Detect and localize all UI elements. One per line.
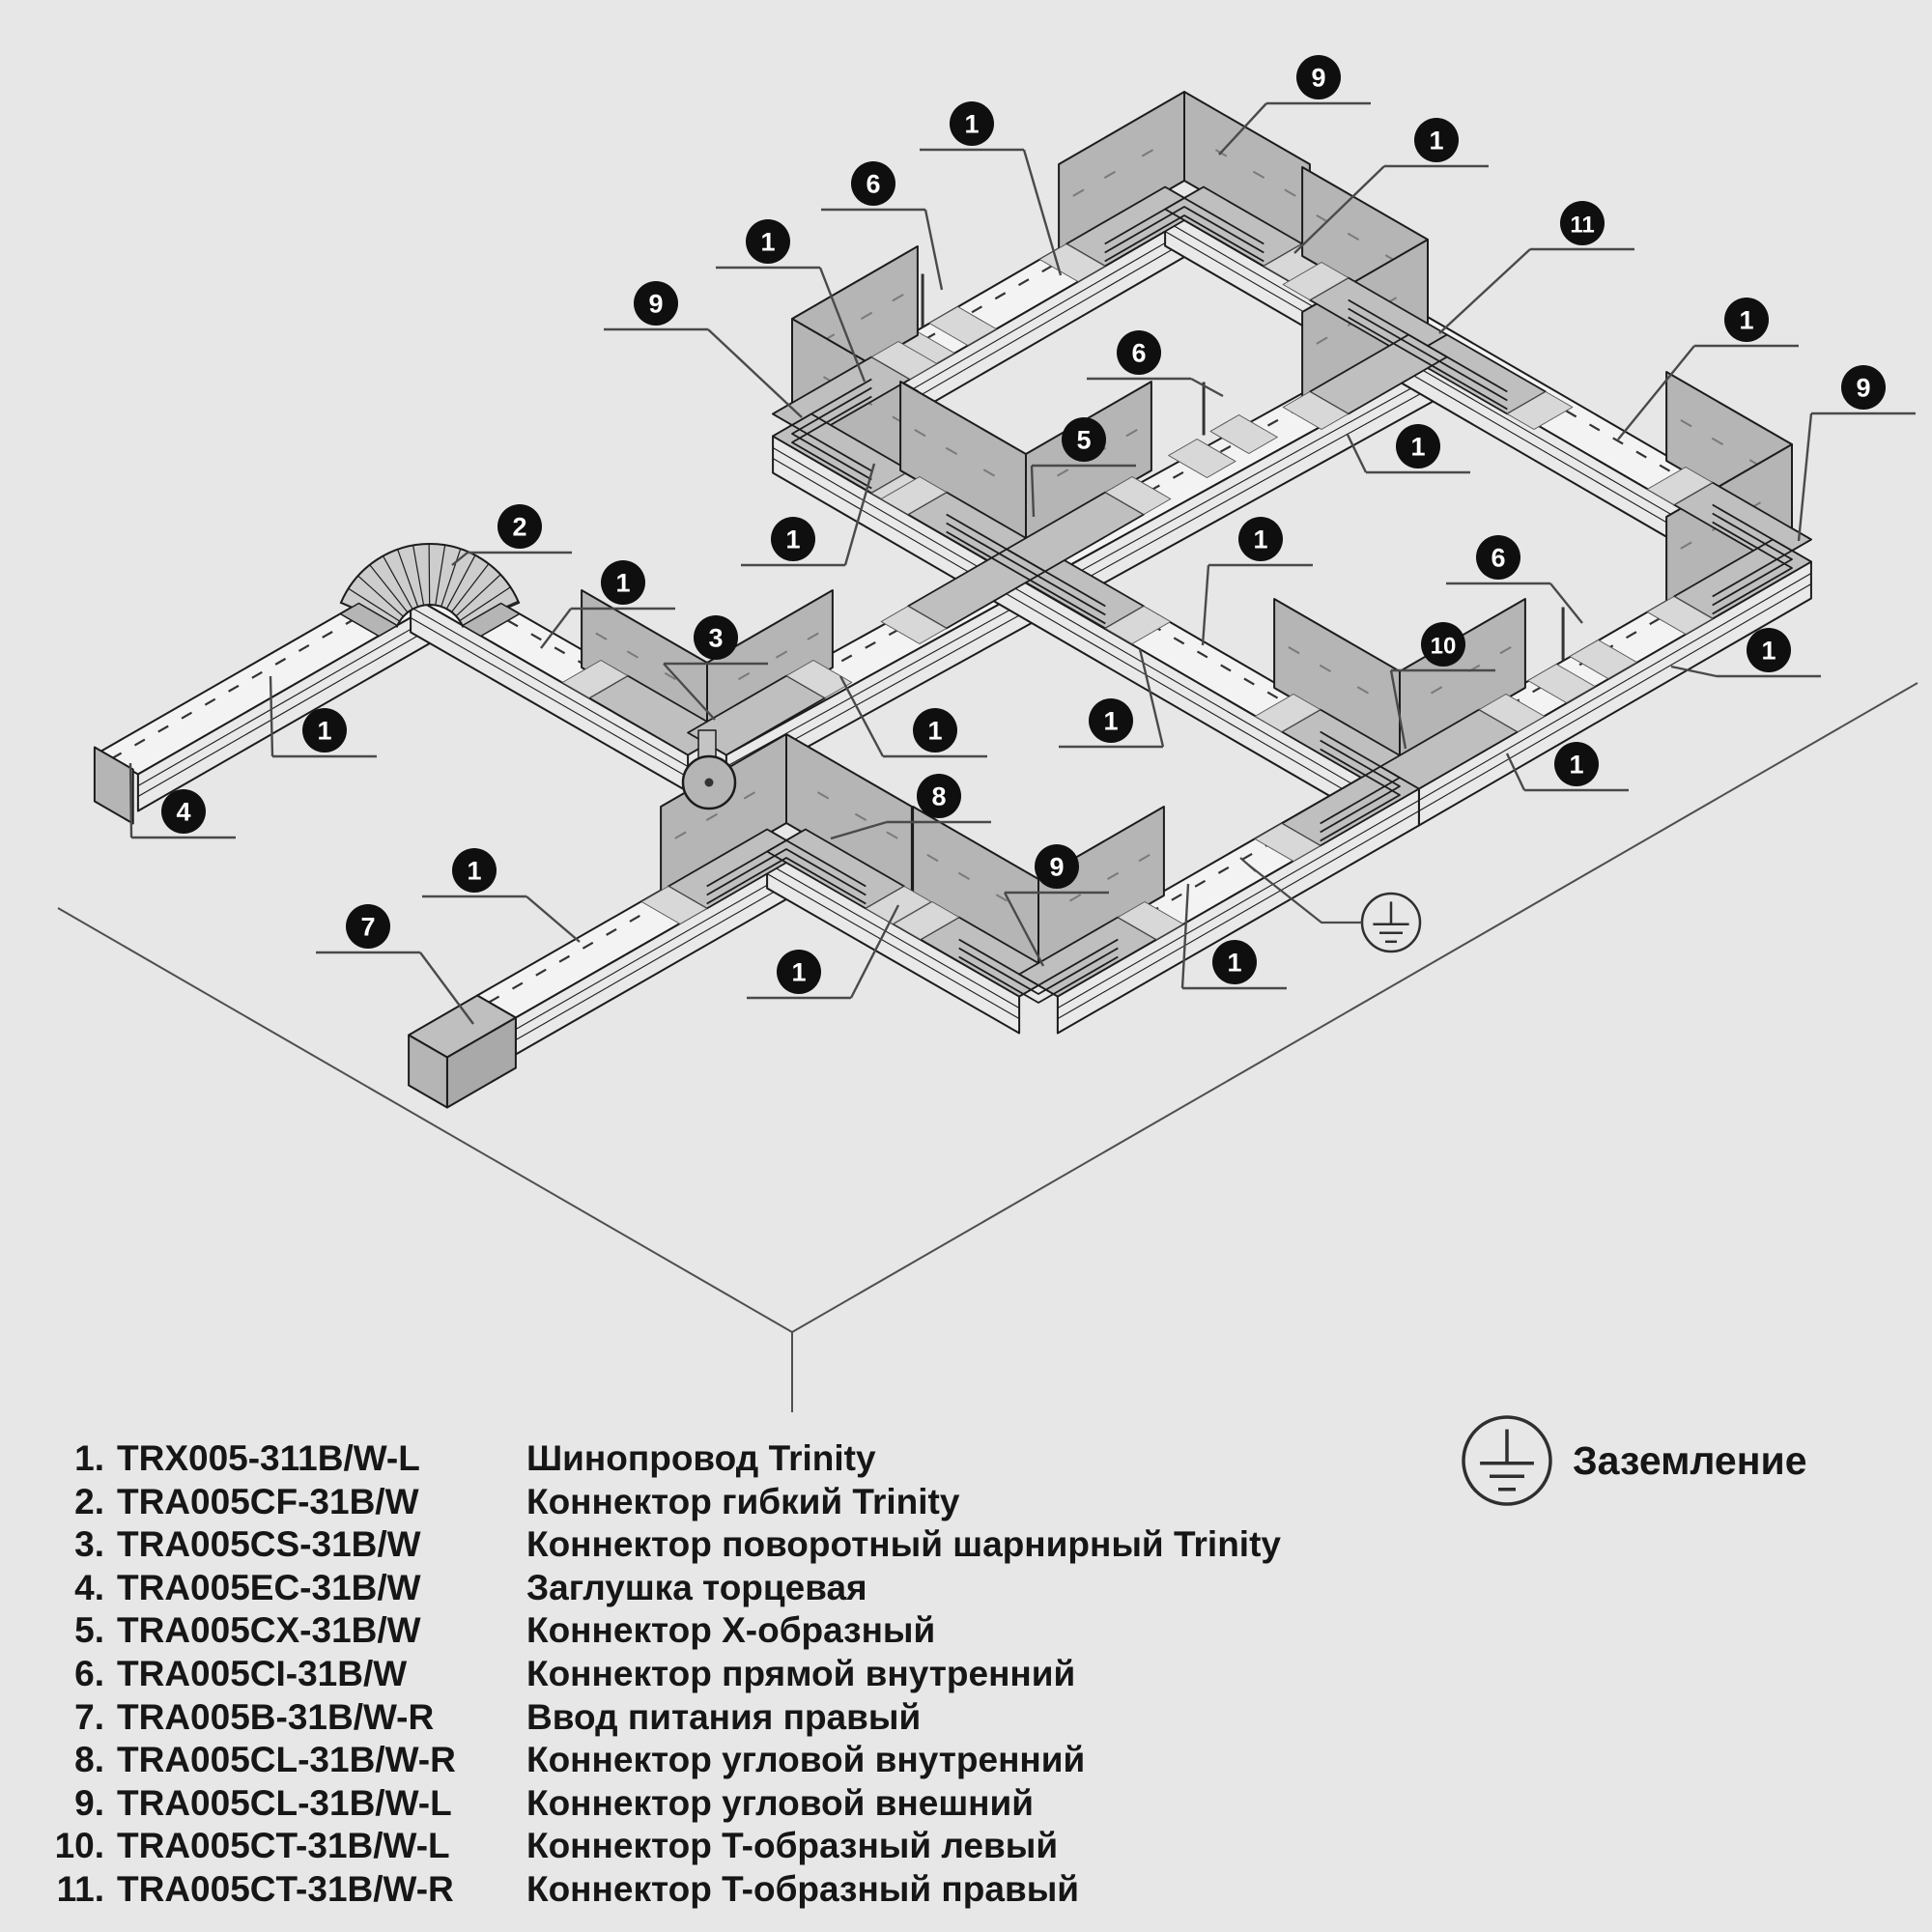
callout-number: 2 xyxy=(512,513,526,542)
legend-item-code: TRX005-311B/W-L xyxy=(117,1437,420,1480)
callout-number: 1 xyxy=(1739,306,1753,335)
legend-item-code: TRA005EC-31B/W xyxy=(117,1567,421,1609)
callout-number: 9 xyxy=(648,290,663,319)
callout-leader xyxy=(1799,413,1811,541)
legend-item-description: Коннектор угловой внешний xyxy=(526,1782,1034,1825)
legend-item-code: TRA005CI-31B/W xyxy=(117,1653,407,1695)
callout-number: 1 xyxy=(467,857,481,886)
legend-item-description: Ввод питания правый xyxy=(526,1696,921,1739)
legend-item-number: 6. xyxy=(39,1653,104,1695)
callout-leader xyxy=(1191,379,1223,396)
legend-item-code: TRA005CL-31B/W-R xyxy=(117,1739,456,1781)
callout-number: 1 xyxy=(1761,637,1776,666)
callout-number: 9 xyxy=(1049,853,1064,882)
callout-leader xyxy=(526,896,580,942)
callout-number: 6 xyxy=(1131,339,1146,368)
legend-item-number: 11. xyxy=(39,1868,104,1911)
legend-item-number: 10. xyxy=(39,1825,104,1867)
legend-item-description: Коннектор T-образный правый xyxy=(526,1868,1079,1911)
legend-item-number: 3. xyxy=(39,1523,104,1566)
legend-item-description: Заглушка торцевая xyxy=(526,1567,867,1609)
callout-leader xyxy=(1203,565,1208,645)
callout-leader xyxy=(130,763,131,838)
legend-item-number: 7. xyxy=(39,1696,104,1739)
legend-item-description: Коннектор угловой внутренний xyxy=(526,1739,1085,1781)
callout-number: 5 xyxy=(1076,426,1091,455)
legend-item-number: 1. xyxy=(39,1437,104,1480)
callout-number: 7 xyxy=(360,913,375,942)
callout-number: 10 xyxy=(1431,634,1457,660)
legend-item-number: 8. xyxy=(39,1739,104,1781)
callout-leader xyxy=(1024,150,1061,275)
legend-item-description: Коннектор поворотный шарнирный Trinity xyxy=(526,1523,1281,1566)
legend-item-number: 5. xyxy=(39,1609,104,1652)
callout-number: 1 xyxy=(964,110,979,139)
callout-number: 3 xyxy=(708,624,723,653)
swivel-hinge-pin xyxy=(705,779,714,787)
callout-number: 1 xyxy=(1103,707,1118,736)
callout-number: 1 xyxy=(1410,433,1425,462)
callout-number: 1 xyxy=(927,717,942,746)
callout-leader xyxy=(708,329,802,417)
callout-number: 1 xyxy=(1569,751,1583,780)
legend-item-description: Коннектор X-образный xyxy=(526,1609,935,1652)
callout-number: 9 xyxy=(1856,374,1870,403)
callout-number: 1 xyxy=(317,717,331,746)
diagram-stage: 916191111965121161310111118491711 1.TRX0… xyxy=(0,0,1932,1932)
callout-leader xyxy=(1439,249,1530,333)
legend-item-code: TRA005CT-31B/W-L xyxy=(117,1825,450,1867)
legend-item-code: TRA005B-31B/W-R xyxy=(117,1696,434,1739)
legend-item-description: Шинопровод Trinity xyxy=(526,1437,876,1480)
callout-number: 1 xyxy=(615,569,630,598)
legend-item-number: 9. xyxy=(39,1782,104,1825)
callout-number: 1 xyxy=(791,958,806,987)
callout-number: 4 xyxy=(176,798,190,827)
callout-number: 9 xyxy=(1311,64,1325,93)
callout-number: 6 xyxy=(1491,544,1505,573)
legend-item-number: 2. xyxy=(39,1481,104,1523)
legend-item-code: TRA005CF-31B/W xyxy=(117,1481,419,1523)
callout-number: 11 xyxy=(1570,213,1594,239)
callout-number: 1 xyxy=(1429,127,1443,156)
callout-number: 6 xyxy=(866,170,880,199)
callout-number: 8 xyxy=(931,782,946,811)
ground-legend-label: Заземление xyxy=(1573,1435,1807,1486)
legend-item-number: 4. xyxy=(39,1567,104,1609)
callout-leader xyxy=(1550,583,1582,623)
legend-item-description: Коннектор гибкий Trinity xyxy=(526,1481,959,1523)
legend-item-code: TRA005CS-31B/W xyxy=(117,1523,421,1566)
callout-number: 1 xyxy=(1227,949,1241,978)
callout-number: 1 xyxy=(785,526,800,554)
legend-item-code: TRA005CX-31B/W xyxy=(117,1609,421,1652)
legend-item-description: Коннектор прямой внутренний xyxy=(526,1653,1075,1695)
callout-number: 1 xyxy=(760,228,775,257)
callout-number: 1 xyxy=(1253,526,1267,554)
callout-leader xyxy=(925,210,942,290)
legend-item-description: Коннектор T-образный левый xyxy=(526,1825,1058,1867)
legend-item-code: TRA005CT-31B/W-R xyxy=(117,1868,454,1911)
legend-item-code: TRA005CL-31B/W-L xyxy=(117,1782,452,1825)
